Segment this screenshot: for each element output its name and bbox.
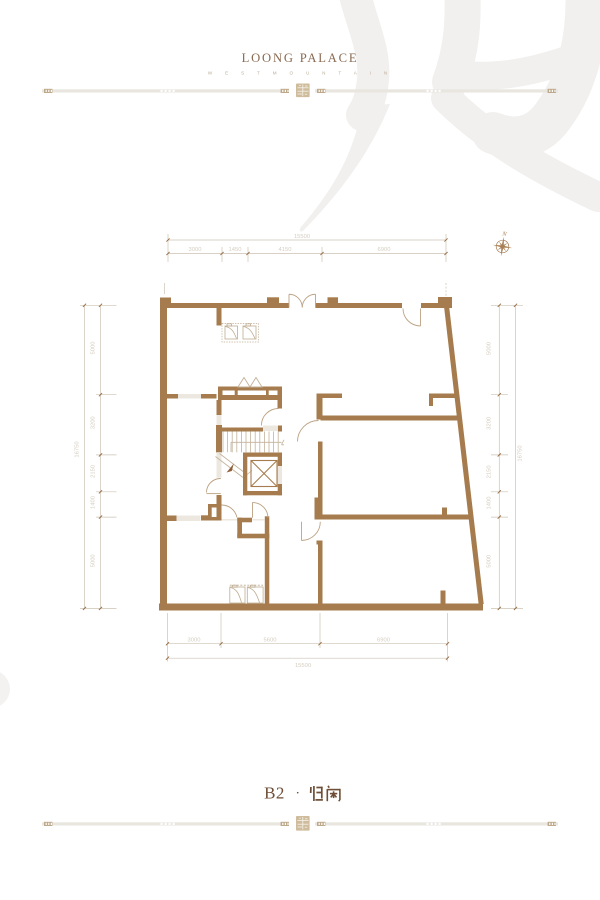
svg-text:2150: 2150 <box>487 465 493 478</box>
svg-text:WESTMOUNTAIN: WESTMOUNTAIN <box>208 71 400 76</box>
svg-text:LOONG PALACE: LOONG PALACE <box>242 51 359 65</box>
svg-text:5000: 5000 <box>91 342 97 355</box>
svg-text:3000: 3000 <box>189 247 202 253</box>
svg-text:2150: 2150 <box>91 465 97 478</box>
svg-text:16750: 16750 <box>75 441 81 457</box>
svg-text:6900: 6900 <box>378 247 391 253</box>
svg-text:1450: 1450 <box>229 247 242 253</box>
svg-text:4150: 4150 <box>279 247 292 253</box>
svg-text:5600: 5600 <box>264 638 277 644</box>
svg-text:B2: B2 <box>264 784 285 803</box>
svg-text:16750: 16750 <box>518 445 524 461</box>
svg-text:3000: 3000 <box>188 638 201 644</box>
svg-text:1400: 1400 <box>91 496 97 509</box>
svg-text:3200: 3200 <box>91 416 97 429</box>
svg-text:6900: 6900 <box>377 638 390 644</box>
svg-text:15500: 15500 <box>295 663 311 669</box>
svg-text:5000: 5000 <box>91 554 97 567</box>
svg-text:3200: 3200 <box>487 417 493 430</box>
svg-text:1400: 1400 <box>487 497 493 510</box>
svg-text:·: · <box>295 787 300 802</box>
svg-text:15500: 15500 <box>294 234 310 240</box>
svg-text:5000: 5000 <box>487 555 493 568</box>
svg-text:5000: 5000 <box>487 342 493 355</box>
